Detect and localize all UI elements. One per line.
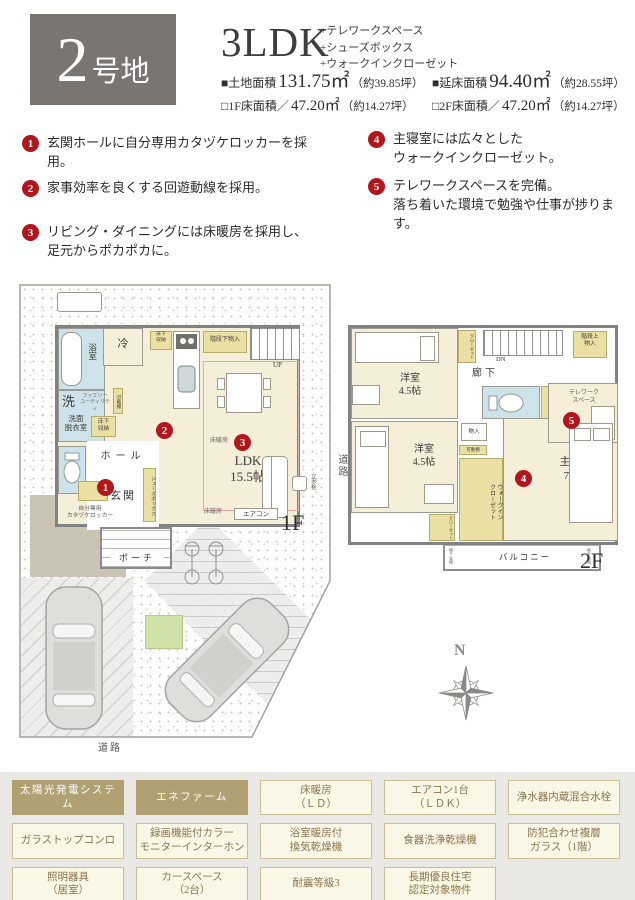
- telework-label: テレワーク スペース: [557, 390, 611, 405]
- bedroom-1: 洋室 4.5帖: [351, 328, 458, 419]
- porch-label: ポーチ: [110, 553, 164, 564]
- bed-icon: [355, 426, 389, 508]
- equipment-cell: 長期優良住宅 認定対象物件: [384, 867, 496, 900]
- feature-line: +テレワークスペース: [320, 23, 458, 40]
- lot-number: 2: [56, 28, 88, 92]
- equipment-cell: エアコン1台 （ＬＤＫ）: [384, 780, 496, 815]
- corridor-label: 廊下: [465, 368, 505, 381]
- equipment-cell: 照明器具 （居室）: [12, 867, 124, 900]
- aircon-label: エアコン: [234, 508, 278, 520]
- equipment-cell: ガラストップコンロ: [12, 823, 124, 858]
- flyer-page: 2 号地 3LDK +テレワークスペース +シューズボックス +ウォークインクロ…: [0, 0, 635, 900]
- bedroom-2-label: 洋室 4.5帖: [396, 444, 452, 469]
- hall-label: ホール: [92, 451, 154, 464]
- laundry-hardware-1: 物干金物: [449, 548, 454, 564]
- equipment-section: 太陽光発電システム エネファーム 床暖房 （ＬＤ） エアコン1台 （ＬＤＫ） 浄…: [0, 772, 635, 900]
- area-label: ■土地面積: [221, 74, 276, 91]
- closet-small-label: クローゼット: [429, 514, 455, 541]
- water-heater-unit: [57, 292, 102, 312]
- point-2-text: 家事効率を良くする回遊動線を採用。: [47, 179, 268, 198]
- area-value: 94.40㎡: [489, 66, 551, 93]
- feature-line: +シューズボックス: [320, 40, 458, 57]
- equipment-cell: 浴室暖房付 換気乾燥機: [260, 823, 372, 858]
- plan-marker-4: 4: [515, 470, 532, 487]
- wic-label: ウォークイン クローゼット: [459, 458, 503, 541]
- chair-icon: [263, 378, 271, 390]
- bed-icon: [355, 332, 439, 363]
- kitchen-fixtures-icon: [174, 332, 199, 408]
- faucet-label: 立水栓: [309, 473, 316, 490]
- plan-marker-5: 5: [563, 412, 580, 429]
- area-label: □1F床面積／: [221, 97, 289, 114]
- floor-plans: 浴室 洗 ファミリー ユーティリティ 可動棚 洗面 脱衣室 床下 収納 ホール …: [0, 278, 635, 772]
- equipment-cell: 耐震等級3: [260, 867, 372, 900]
- dining-table: [226, 373, 262, 413]
- lot-suffix: 号地: [91, 48, 149, 90]
- closet-top-label: クローゼット: [458, 330, 476, 363]
- bedroom-1-label: 洋室 4.5帖: [382, 373, 438, 398]
- compass-icon: [437, 664, 495, 722]
- kitchen-counter: [173, 331, 200, 409]
- locker-label: 自分専用 カタヅケロッカー: [58, 506, 122, 520]
- point-4: 4 主寝室には広々とした ウォークインクローゼット。: [368, 130, 628, 168]
- equipment-cell: 床暖房 （ＬＤ）: [260, 780, 372, 815]
- point-1: 1 玄関ホールに自分専用カタヅケロッカーを採用。: [22, 134, 332, 172]
- point-2: 2 家事効率を良くする回遊動線を採用。: [22, 179, 332, 198]
- point-4-badge: 4: [368, 131, 385, 148]
- compass-north-label: N: [454, 642, 466, 660]
- equipment-cell: 太陽光発電システム: [12, 780, 124, 815]
- chair-icon: [263, 396, 271, 408]
- balcony: バルコニー 物干金物 物干金物: [443, 545, 601, 571]
- area-label: □2F床面積／: [432, 97, 500, 114]
- stairs-2f: [483, 330, 563, 356]
- toilet-room-2f: [482, 386, 540, 419]
- floor-2f-label: 2F: [580, 548, 603, 574]
- porch: ポーチ: [100, 527, 172, 569]
- plan-marker-1: 1: [97, 479, 114, 496]
- bedroom-2: 洋室 4.5帖: [351, 421, 458, 513]
- bicycle-icon: [207, 540, 225, 586]
- desk-icon: [352, 385, 380, 405]
- road-label-east: 道路: [334, 454, 349, 478]
- plan-marker-3: 3: [234, 434, 251, 451]
- washer-label: 洗: [62, 394, 75, 410]
- point-3-badge: 3: [22, 224, 39, 241]
- road-label-south: 道路: [98, 739, 122, 754]
- equipment-cell: 録画機能付カラー モニターインターホン: [136, 823, 248, 858]
- equipment-cell: カースペース （2台）: [136, 867, 248, 900]
- over-stairs-storage: 階段上 物入: [573, 331, 607, 358]
- point-5-badge: 5: [368, 178, 385, 195]
- shoe-box-label: シューズボックス: [143, 468, 156, 522]
- stairs-1f: [250, 328, 300, 360]
- family-utility-label: ファミリー ユーティリティ: [80, 394, 110, 413]
- bicycle-icon: [183, 540, 201, 586]
- house-2f: 洋室 4.5帖 クローゼット DN 階段上 物入 廊下 テレワーク スペース 5: [348, 325, 618, 545]
- toilet-icon: [483, 387, 539, 418]
- area-land: ■土地面積 131.75㎡ （約39.85坪）: [221, 66, 423, 93]
- area-value: 131.75㎡: [278, 66, 349, 93]
- area-note: （約39.85坪）: [352, 75, 424, 91]
- equipment-cell: 食器洗浄乾燥機: [384, 823, 496, 858]
- desk-icon: [424, 484, 454, 504]
- house-1f: 浴室 洗 ファミリー ユーティリティ 可動棚 洗面 脱衣室 床下 収納 ホール …: [55, 325, 300, 527]
- lot-number-box: 2 号地: [30, 14, 176, 105]
- area-note: （約14.27坪）: [553, 98, 625, 114]
- floor-heating-label-2: 床暖房: [198, 509, 228, 517]
- balcony-label: バルコニー: [485, 552, 565, 563]
- underfloor-storage-1: 床下 収納: [150, 331, 172, 350]
- area-2f: □2F床面積／ 47.20㎡ （約14.27坪）: [432, 94, 625, 115]
- laundry-room-label: 洗面 脱衣室: [59, 414, 93, 433]
- area-value: 47.20㎡: [502, 94, 551, 115]
- area-label: ■延床面積: [432, 74, 487, 91]
- area-note: （約14.27坪）: [342, 98, 414, 114]
- area-note: （約28.55坪）: [553, 75, 625, 91]
- storage-label: 物入: [461, 423, 487, 441]
- bathtub-icon: [61, 332, 82, 386]
- equipment-cell: エネファーム: [136, 780, 248, 815]
- point-1-text: 玄関ホールに自分専用カタヅケロッカーを採用。: [47, 134, 332, 172]
- point-5-text: テレワークスペースを完備。 落ち着いた環境で勉強や仕事が捗ります。: [393, 177, 633, 234]
- layout-title: 3LDK: [221, 18, 330, 66]
- point-3-text: リビング・ダイニングには床暖房を採用し、 足元からポカポカに。: [47, 223, 307, 261]
- equipment-grid: 太陽光発電システム エネファーム 床暖房 （ＬＤ） エアコン1台 （ＬＤＫ） 浄…: [12, 780, 620, 900]
- area-value: 47.20㎡: [291, 94, 340, 115]
- fridge-nook: 冷: [103, 328, 143, 366]
- bathroom: 浴室: [58, 328, 105, 390]
- underfloor-storage-2: 床下 収納: [91, 416, 116, 437]
- chair-icon: [217, 378, 225, 390]
- point-3: 3 リビング・ダイニングには床暖房を採用し、 足元からポカポカに。: [22, 223, 332, 261]
- dn-label: DN: [496, 356, 505, 364]
- point-4-text: 主寝室には広々とした ウォークインクローゼット。: [393, 130, 562, 168]
- area-total-floor: ■延床面積 94.40㎡ （約28.55坪）: [432, 66, 625, 93]
- chair-icon: [217, 396, 225, 408]
- car-icon: [42, 584, 106, 732]
- equipment-cell: 防犯合わせ複層 ガラス（1階）: [508, 823, 620, 858]
- bed-icon: [569, 423, 613, 523]
- movable-shelf-label: 可動棚: [113, 388, 123, 414]
- equipment-cell: 浄水器内蔵混合水栓: [508, 780, 620, 815]
- floor-1f-label: 1F: [281, 510, 304, 536]
- under-stairs-storage: 階段下物入: [203, 331, 247, 353]
- point-5: 5 テレワークスペースを完備。 落ち着いた環境で勉強や仕事が捗ります。: [368, 177, 633, 234]
- bathroom-label: 浴室: [87, 343, 98, 360]
- faucet-icon: [292, 476, 307, 491]
- point-2-badge: 2: [22, 180, 39, 197]
- plan-marker-2: 2: [156, 422, 173, 439]
- point-1-badge: 1: [22, 135, 39, 152]
- floor-heating-label-1: 床暖房: [204, 438, 234, 446]
- area-1f: □1F床面積／ 47.20㎡ （約14.27坪）: [221, 94, 414, 115]
- movable-shelf-2f: 可動棚: [459, 445, 487, 455]
